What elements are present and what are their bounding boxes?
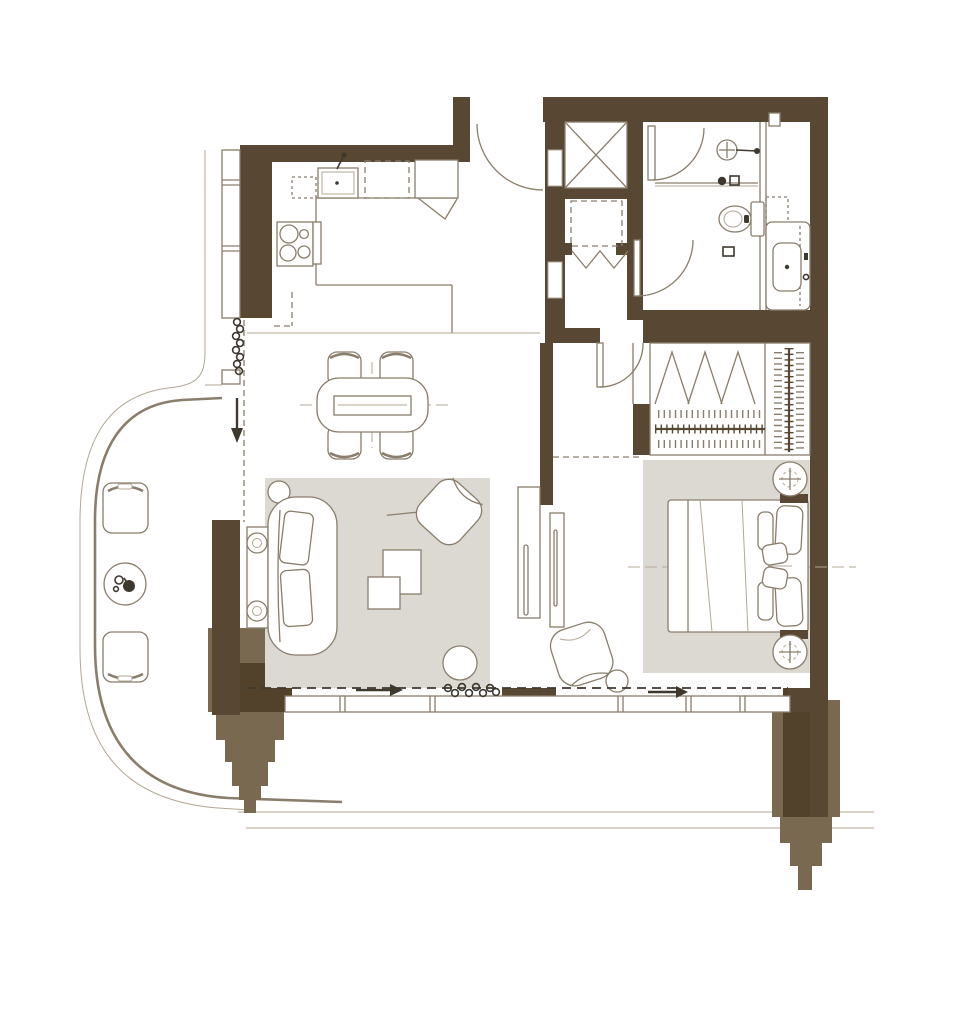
wall-hall-right xyxy=(643,328,828,343)
wall-kitchen-left xyxy=(240,145,272,318)
cooktop xyxy=(277,222,321,266)
wardrobe xyxy=(633,343,810,455)
wall-shaft-mid xyxy=(545,188,643,199)
hall-door-leaf xyxy=(634,240,640,296)
cooktop-controls xyxy=(313,222,321,264)
kitchen xyxy=(247,152,540,333)
table-lamp xyxy=(247,533,267,553)
media-wall xyxy=(518,487,564,627)
bedroom-door-leaf xyxy=(597,343,603,387)
tv-console-living xyxy=(518,487,540,618)
bathroom-door-leaf xyxy=(648,126,655,180)
window-band-left-end xyxy=(222,370,240,384)
wardrobe-hanging-rail-bottom xyxy=(655,414,765,444)
window-band-left xyxy=(222,150,240,318)
wall-partition-living-bedroom xyxy=(540,343,553,505)
balcony-table xyxy=(104,563,146,605)
bifold-doors xyxy=(655,352,755,404)
appliance-closet-dashed xyxy=(571,201,622,246)
right-stepped-column xyxy=(772,688,840,890)
slide-arrow-down xyxy=(231,398,243,443)
vanity-sink xyxy=(766,222,810,310)
shaft-door-slot-lower xyxy=(548,262,562,298)
balcony-furniture xyxy=(103,483,148,682)
nightstand xyxy=(773,462,807,496)
table-lamp xyxy=(247,601,267,621)
console-table xyxy=(247,527,268,628)
hall-door-swing xyxy=(637,240,693,296)
shower-valve xyxy=(769,113,780,126)
wall-left-lower xyxy=(212,520,240,715)
sofa-cushion xyxy=(280,569,313,627)
floor-plan xyxy=(0,0,959,1024)
sofa-cushion xyxy=(279,510,314,565)
bathroom-door-swing xyxy=(652,128,704,180)
wall-top xyxy=(543,97,828,122)
floor-plan-drawing xyxy=(0,0,959,1024)
curtain-coil-left xyxy=(233,319,244,375)
upper-cabinets-dashed xyxy=(365,161,409,198)
shaft-door-slot-upper xyxy=(548,150,562,186)
coffee-table-small xyxy=(368,577,400,609)
toilet-brush xyxy=(723,247,734,256)
sofa xyxy=(268,497,337,655)
bed xyxy=(668,500,808,632)
bathroom xyxy=(655,113,810,310)
wall-bathroom-bottom xyxy=(643,310,828,328)
cabinet-open-door xyxy=(418,198,457,219)
wall-bedroom-window-pier xyxy=(788,688,810,712)
wall-closet-strip-left xyxy=(545,243,572,255)
dining-table xyxy=(317,378,428,432)
oven-column xyxy=(415,160,458,198)
wall-closet-end xyxy=(633,404,650,455)
balcony-chair xyxy=(103,632,148,682)
ottoman xyxy=(443,646,477,680)
balcony-chair xyxy=(103,483,148,533)
wall-right xyxy=(810,97,828,817)
upper-cabinet-small-dashed xyxy=(292,177,316,198)
nightstand xyxy=(773,635,807,669)
accent-pillow xyxy=(761,542,788,566)
entry-door-swing xyxy=(477,124,543,190)
wall-hall-left xyxy=(545,328,600,343)
toilet xyxy=(718,176,764,256)
wardrobe-hanging-rail-right xyxy=(778,348,800,452)
window-band-bottom xyxy=(285,696,790,712)
bedroom-door-swing xyxy=(600,343,643,387)
accent-pillow xyxy=(761,566,788,590)
